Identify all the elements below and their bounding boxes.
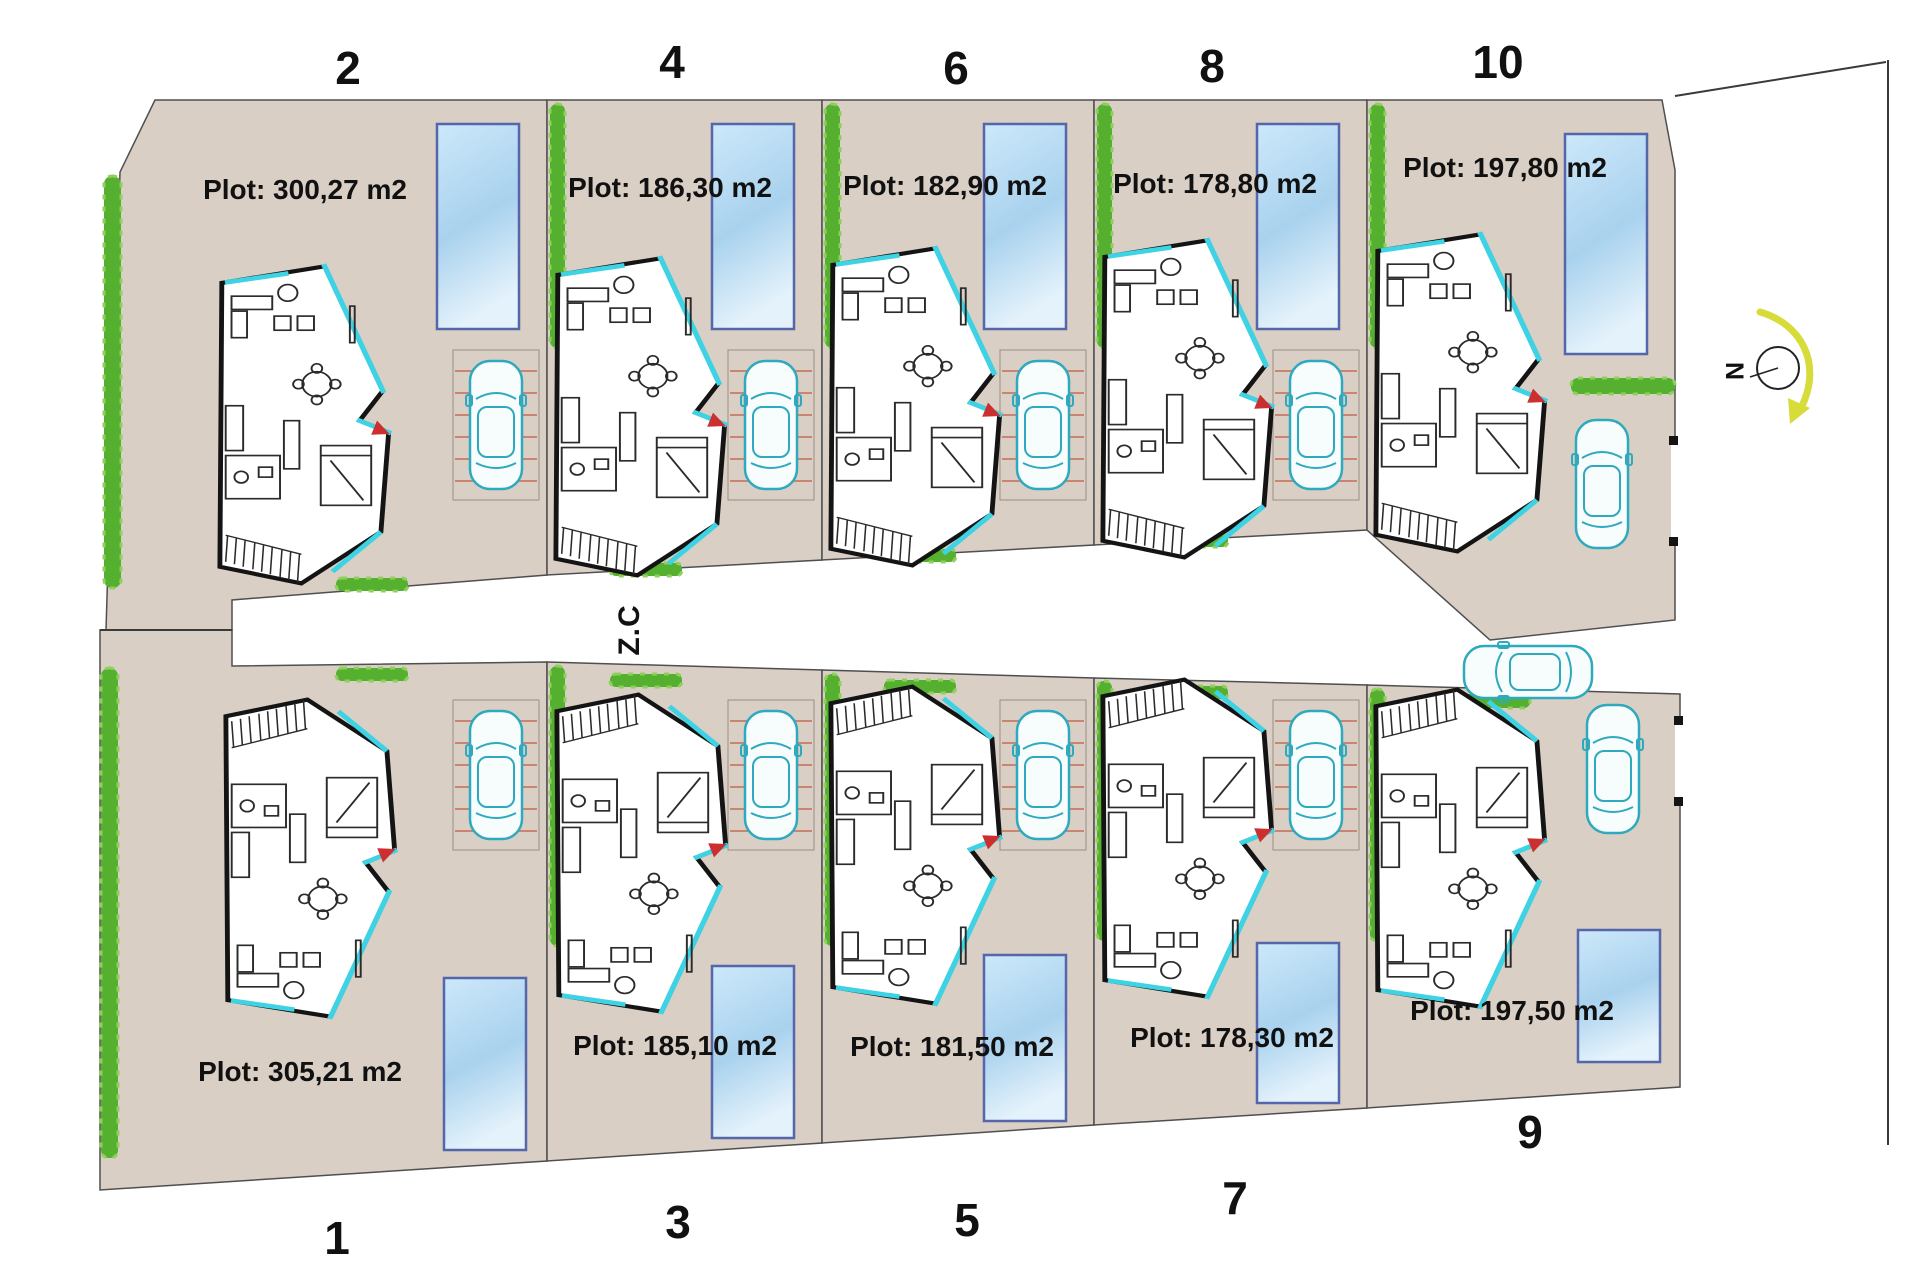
gate-post <box>1669 537 1678 546</box>
car-icon-street <box>1464 642 1592 702</box>
gate-post <box>1674 716 1683 725</box>
gate-post <box>1669 436 1678 445</box>
hedge-left-upper <box>104 176 121 588</box>
plot-6-area-label: Plot: 182,90 m2 <box>843 170 1047 202</box>
plot-9-area-label: Plot: 197,50 m2 <box>1410 995 1614 1027</box>
plot-8-area-label: Plot: 178,80 m2 <box>1113 168 1317 200</box>
plot-5-area-label: Plot: 181,50 m2 <box>850 1031 1054 1063</box>
hedge-road-strip <box>336 668 408 681</box>
plot-2-area-label: Plot: 300,27 m2 <box>203 174 407 206</box>
plot-9-number: 9 <box>1517 1105 1543 1159</box>
pool-plot8 <box>1257 124 1339 329</box>
pool-plot4 <box>712 124 794 329</box>
road-label: Z.C <box>613 604 647 655</box>
north-indicator <box>1750 312 1810 424</box>
plot-6-number: 6 <box>943 41 969 95</box>
hedge-road-strip <box>610 674 682 687</box>
car-icon-plot9 <box>1583 705 1643 833</box>
car-icon-plot2 <box>466 361 526 489</box>
car-icon-plot8 <box>1286 361 1346 489</box>
car-icon-plot5 <box>1013 711 1073 839</box>
plot-7-area-label: Plot: 178,30 m2 <box>1130 1022 1334 1054</box>
plot-3-area-label: Plot: 185,10 m2 <box>573 1030 777 1062</box>
compass-north-label: N <box>1722 362 1751 380</box>
gate-opening-plot9 <box>1675 725 1685 797</box>
site-plan: 2 4 6 8 10 1 3 5 7 9 Plot: 300,27 m2 Plo… <box>0 0 1920 1280</box>
gate-post <box>1674 797 1683 806</box>
plot-3-number: 3 <box>665 1195 691 1249</box>
plot-10-number: 10 <box>1472 35 1523 89</box>
plot-5-number: 5 <box>954 1193 980 1247</box>
plot-1-area-label: Plot: 305,21 m2 <box>198 1056 402 1088</box>
plot-4-number: 4 <box>659 35 685 89</box>
hedge-road-strip <box>336 578 408 591</box>
car-icon-plot10 <box>1572 420 1632 548</box>
pool-plot6 <box>984 124 1066 329</box>
gate-opening-plot10 <box>1671 445 1681 537</box>
car-icon-plot3 <box>741 711 801 839</box>
pool-plot2 <box>437 124 519 329</box>
plot-4-area-label: Plot: 186,30 m2 <box>568 172 772 204</box>
plot-1-number: 1 <box>324 1211 350 1265</box>
plot-7-number: 7 <box>1222 1171 1248 1225</box>
hedge-road-strip <box>1571 378 1675 394</box>
hedge-left-lower <box>101 668 118 1158</box>
plot-8-number: 8 <box>1199 39 1225 93</box>
plot-2-number: 2 <box>335 41 361 95</box>
boundary-topright-connector <box>1675 62 1886 96</box>
plot-10-area-label: Plot: 197,80 m2 <box>1403 152 1607 184</box>
car-icon-plot4 <box>741 361 801 489</box>
car-icon-plot6 <box>1013 361 1073 489</box>
pool-plot1 <box>444 978 526 1150</box>
car-icon-plot7 <box>1286 711 1346 839</box>
car-icon-plot1 <box>466 711 526 839</box>
